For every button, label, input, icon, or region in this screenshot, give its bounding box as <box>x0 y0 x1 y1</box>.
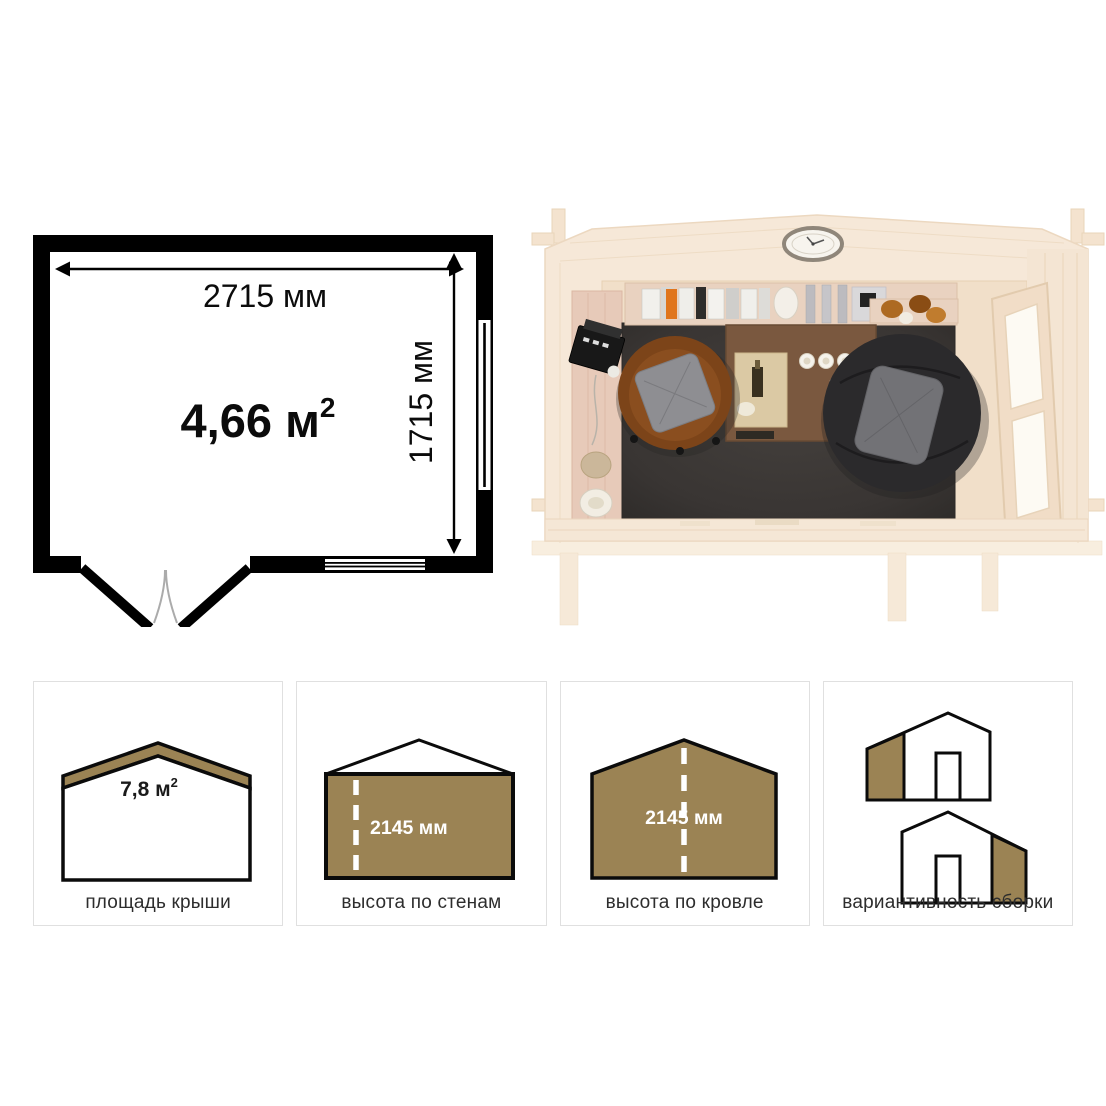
bowl <box>909 295 931 313</box>
shelf <box>625 283 958 325</box>
card-assembly-variants: вариантивность сборки <box>823 681 1073 926</box>
card-wall-height: 2145 мм высота по стенам <box>296 681 546 926</box>
area-value: 4,66 м <box>181 394 320 447</box>
card-label: вариантивность сборки <box>824 892 1072 914</box>
roof-area-value: 7,8 м2 <box>120 775 178 801</box>
height-label: 1715 мм <box>403 340 439 464</box>
ridge-height-icon: 2145 мм <box>560 684 810 909</box>
bottle <box>752 367 763 397</box>
wall-height-icon: 2145 мм <box>296 684 546 909</box>
bowl <box>881 300 903 318</box>
cabin-base-beams <box>532 541 1102 625</box>
roof-area-sup: 2 <box>171 775 178 790</box>
card-label: высота по стенам <box>297 892 545 914</box>
width-dimension: 2715 мм <box>55 262 464 315</box>
spec-cards: 7,8 м2 площадь крыши 2145 мм высота по с… <box>33 681 1073 926</box>
height-dimension: 1715 мм <box>403 253 462 554</box>
front-wall <box>545 519 1088 541</box>
roof-area-icon: 7,8 м2 <box>33 684 283 909</box>
card-label: площадь крыши <box>34 892 282 914</box>
assembly-variants-icon <box>823 684 1073 909</box>
double-door <box>82 568 249 627</box>
right-window <box>479 320 491 490</box>
bowl <box>926 307 946 323</box>
wall-clock <box>784 228 842 260</box>
house-variant-left <box>867 713 990 800</box>
width-label: 2715 мм <box>203 278 327 314</box>
area-label: 4,66 м2 <box>181 392 336 447</box>
card-label: высота по кровле <box>561 892 809 914</box>
interior-photo <box>530 203 1106 633</box>
ridge-height-value: 2145 мм <box>645 807 723 829</box>
infographic-canvas: 2715 мм 1715 мм 4,66 м2 <box>0 0 1106 1106</box>
card-ridge-height: 2145 мм высота по кровле <box>560 681 810 926</box>
bottom-window <box>325 559 425 570</box>
floorplan-diagram: 2715 мм 1715 мм 4,66 м2 <box>33 235 493 627</box>
wall-height-value: 2145 мм <box>370 817 448 839</box>
area-sup: 2 <box>320 392 336 423</box>
card-roof-area: 7,8 м2 площадь крыши <box>33 681 283 926</box>
roof-area-number: 7,8 м <box>120 778 171 801</box>
house-variant-right <box>902 812 1026 903</box>
orange-book <box>666 289 677 319</box>
